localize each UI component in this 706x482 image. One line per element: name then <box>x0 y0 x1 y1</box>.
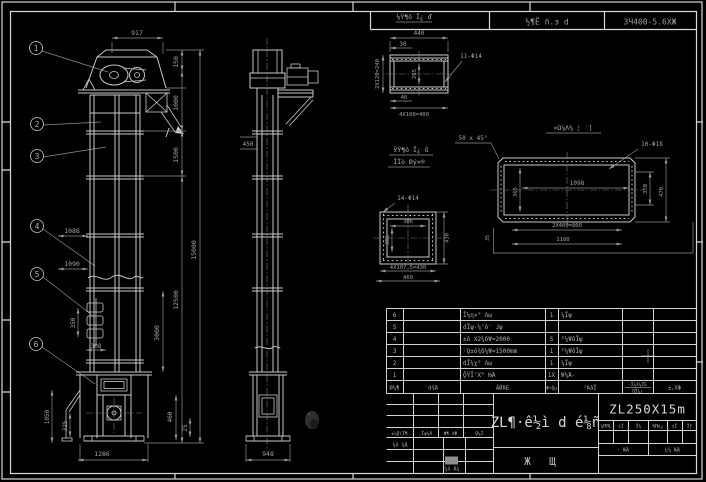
bom-name: ǬΫĨ″Χ° ǶΆ <box>463 370 496 379</box>
dim-casing-holes: 10-Φ18 <box>641 141 663 148</box>
dim-1500: 1500 <box>172 147 180 163</box>
info-header-3: ǶĦɳ¿ <box>653 424 664 430</box>
bom-item: 3 <box>393 348 397 355</box>
sig-row-design: ¼ô ¾Ά <box>392 442 407 449</box>
bom-material: °¼ΨôĬψ <box>561 335 583 343</box>
bom-qty: 1 <box>550 312 554 319</box>
cad-drawing-sheet: ½¶Ё ñ.з d 3Ч400-5.6ΧЖ 1 2 3 4 5 6 917 15… <box>0 0 706 482</box>
dim-25: 25 <box>182 424 189 432</box>
bom-qty: 1 <box>550 360 554 367</box>
cursor-artifact <box>305 411 319 429</box>
detail-casing-label: ¤Ω⅞Λ⅜ ¦ ′] <box>553 123 592 132</box>
bom-table: 6 Ĩ¼η×° Λω 1 ¼Ĭψ 5 ɗĨψ·¼″ó′ ɺψ 4 ±ô Χ2¾δ… <box>387 309 697 395</box>
dim-bucket-width: 308 <box>91 343 102 350</box>
dim-base-width: 948 <box>262 450 274 458</box>
dim-35: 35 <box>485 235 491 241</box>
dim-4x100: 4X100=400 <box>399 112 429 118</box>
side-view-elevator: 450 948 <box>240 38 318 462</box>
detail-channel-section: ⅛Ϋ¶ô Ī¿ ď 440 30 265 11-Φ14 2X120=240 40… <box>375 12 482 118</box>
bom-item: 4 <box>393 336 397 343</box>
bom-header-weight-top: ·Ĭ¼Χ¼ΪΈ <box>628 380 647 388</box>
dim-1090: 1090 <box>64 260 80 268</box>
bom-material: °¼ΨôĬψ <box>561 347 583 355</box>
product-name: ZL¶·ê½ì d é⅛ñ <box>491 415 601 431</box>
dim-channel-holes: 11-Φ14 <box>460 53 482 60</box>
bom-name: Ĩ¼η×° Λω <box>463 312 492 319</box>
dim-150: 150 <box>172 56 180 68</box>
bom-material: ¼Ĭψ <box>561 311 572 319</box>
dim-boot-width: 1286 <box>94 450 110 458</box>
dim-flange-b2: 460 <box>403 275 413 281</box>
bom-item: 5 <box>393 324 397 331</box>
dim-1000: 1000 <box>172 95 180 111</box>
sheet-type: Ж Щ <box>524 455 562 468</box>
info-header-2: Ĭ¼ <box>636 422 642 430</box>
front-view-elevator: 917 150 1000 1500 12500 15000 3000 1086 … <box>44 29 246 462</box>
sig-header-2: Φ¶ ΧΦ <box>444 431 458 437</box>
bom-header-material: ²ΆâΪ <box>583 385 596 392</box>
drawing-canvas: ½¶Ё ñ.з d 3Ч400-5.6ΧЖ 1 2 3 4 5 6 917 15… <box>0 0 706 482</box>
dim-flange-b1: 4X107.5=430 <box>390 265 426 271</box>
dim-2x120: 2X120=240 <box>375 59 381 89</box>
dim-3000: 3000 <box>153 325 161 341</box>
title-block: ±¼Ǭ(Ĭ¶ ¸Ĭψ¼Ă Φ¶ ΧΦ ·Ǭ¼Ĩ ¼ô ¾Ά ¼ô Ά¼ ZL¶·… <box>387 394 697 474</box>
dim-460: 460 <box>167 411 174 422</box>
dim-head-width: 917 <box>131 29 143 37</box>
dim-1050: 1050 <box>44 409 51 424</box>
dim-flange-holes: 14-Φ14 <box>397 195 419 202</box>
dim-440: 440 <box>414 30 425 37</box>
scale-label: · ǶΆ <box>617 447 629 454</box>
balloon-1: 1 <box>34 44 39 53</box>
dim-flange-right: 430 <box>445 233 451 243</box>
detail-channel-label: ⅛Ϋ¶ô Ī¿ ď <box>396 12 432 21</box>
bom-material: Ψ¼Ά· <box>561 371 575 379</box>
dim-overall-height: 15000 <box>190 240 198 260</box>
dim-flange-h: 306 <box>385 235 391 245</box>
dim-1098: 1098 <box>570 180 585 187</box>
note-chamfer: 50 x 45° <box>459 135 488 142</box>
dim-1086: 1086 <box>64 227 80 235</box>
info-header-1: ±Ī <box>618 423 624 430</box>
dim-1100: 1100 <box>556 237 569 243</box>
sig-row-check: ¼ô Ά¼ <box>444 466 459 473</box>
bom-header-remark: ±,ΧΦ <box>668 386 681 392</box>
info-grid: ¼ĦЯĿ ±Ī Ĭ¼ ǶĦɳ¿ ±Ĭ Ĭƒ · ǶΆ Ŀ¼ ǶΆ <box>601 422 693 454</box>
bom-header-row: Ø¼¶ ′d¾Ά ĂǾΆΕ Φ↑Ǭμ ²ΆâΪ ·Ĭ¼Χ¼ΪΈ ÓΪ¼¿ ±,Χ… <box>390 380 682 395</box>
balloon-6: 6 <box>34 340 39 349</box>
sig-header-1: ¸Ĭψ¼Ă <box>419 429 433 437</box>
balloon-5: 5 <box>35 270 40 279</box>
detail-flange-label-1: ЎΫ¶ô Ī¿ ů <box>393 145 428 154</box>
drawing-code: ZL250X15m <box>609 402 686 417</box>
dim-bucket-pitch: 350 <box>70 317 77 328</box>
dim-325: 325 <box>62 420 69 431</box>
detail-flange-label-2: ĪÏò Đý×® <box>393 157 424 166</box>
detail-square-flange: ЎΫ¶ô Ī¿ ů ĪÏò Đý×® 14-Φ14 306 306 430 4X… <box>373 145 451 281</box>
bom-header-qty: Φ↑Ǭμ <box>546 385 557 392</box>
signature-area: ±¼Ǭ(Ĭ¶ ¸Ĭψ¼Ă Φ¶ ΧΦ ·Ǭ¼Ĩ ¼ô ¾Ά ¼ô Ά¼ <box>391 429 483 473</box>
dim-40: 40 <box>401 95 408 101</box>
sig-header-3: ·Ǭ¼Ĩ <box>473 430 484 437</box>
bom-name: ɗĨ¼χ° Λω <box>463 360 492 367</box>
info-header-5: Ĭƒ <box>687 422 693 430</box>
bom-name: ·Ǫ±ô¾δ¼Ψ=1500mm <box>463 348 518 355</box>
bom-material: ¼Ĭψ <box>561 359 572 367</box>
bom-item: 6 <box>393 312 397 319</box>
bom-name: ɗĨψ·¼″ó′ ɺψ <box>463 324 503 331</box>
stamp-mark <box>445 457 458 465</box>
bom-header-item: Ø¼¶ <box>390 385 400 392</box>
dim-2x400: 2X400=800 <box>552 223 582 229</box>
balloon-2: 2 <box>35 120 40 129</box>
balloon-3: 3 <box>35 152 40 161</box>
bom-qty: 1Χ <box>548 372 556 379</box>
bom-name: ±ô Χ2¾δΨ=2000 <box>463 336 510 343</box>
sheet-label: Ŀ¼ ǶΆ <box>665 447 680 454</box>
bom-qty: 1 <box>550 348 554 355</box>
balloon-4: 4 <box>35 222 40 231</box>
bom-item: 1 <box>393 372 397 379</box>
dim-365: 365 <box>513 187 519 197</box>
dim-265: 265 <box>412 69 418 79</box>
dim-12500: 12500 <box>172 290 180 310</box>
bom-qty: 5 <box>550 336 554 343</box>
bom-header-name: ĂǾΆΕ <box>496 385 509 392</box>
dim-470: 470 <box>659 187 665 197</box>
dim-450: 450 <box>243 141 254 148</box>
dim-30: 30 <box>399 41 407 48</box>
info-header-0: ¼ĦЯĿ <box>601 424 612 430</box>
bom-header-weight-bottom: ÓΪ¼¿ <box>632 388 643 395</box>
sig-header-0: ±¼Ǭ(Ĭ¶ <box>391 429 408 437</box>
bom-header-code: ′d¾Ά <box>425 385 439 392</box>
bom-item: 2 <box>393 360 397 367</box>
dim-flange-w: 306 <box>403 219 413 225</box>
front-view-dimensions: 917 150 1000 1500 12500 15000 3000 1086 … <box>44 29 246 462</box>
strip-motor-label: ½¶Ё ñ.з d <box>525 17 569 27</box>
info-header-4: ±Ĭ <box>672 422 678 430</box>
dim-350: 350 <box>643 184 649 194</box>
strip-power-label: 3Ч400-5.6ΧЖ <box>624 18 677 27</box>
